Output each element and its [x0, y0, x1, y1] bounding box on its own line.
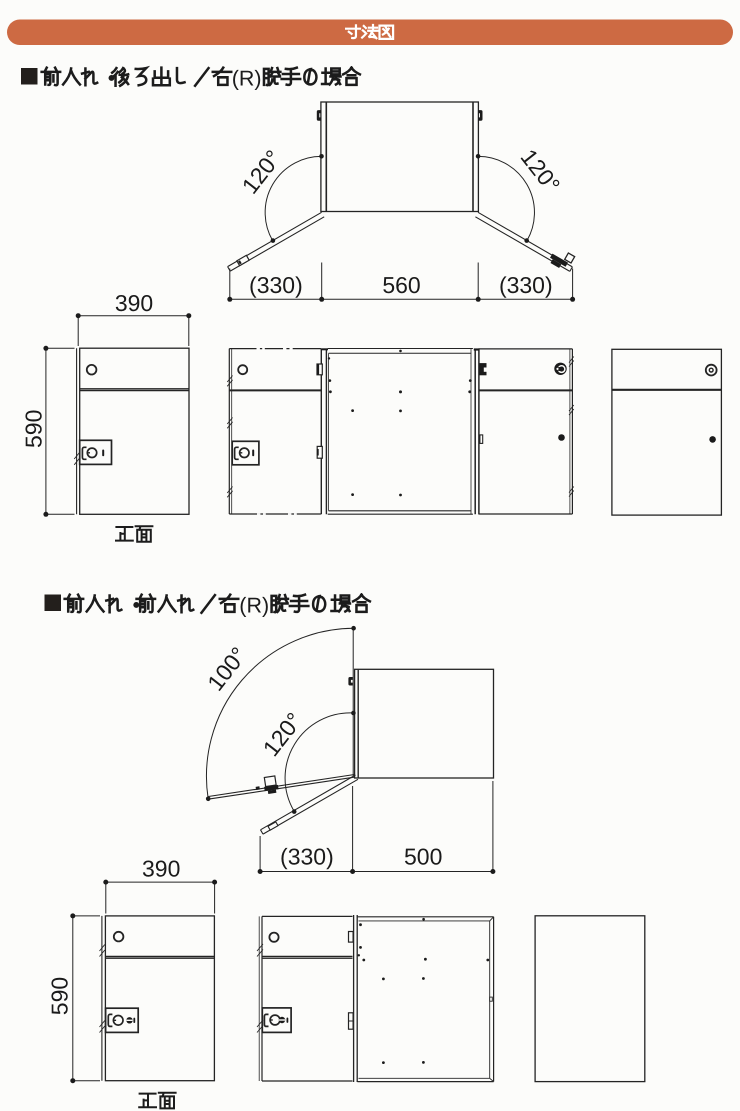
svg-text:500: 500 [404, 844, 442, 870]
svg-text:390: 390 [115, 290, 153, 316]
svg-text:590: 590 [47, 977, 73, 1015]
svg-text:390: 390 [142, 856, 180, 882]
svg-text:(330): (330) [249, 272, 303, 298]
svg-text:(R): (R) [232, 67, 262, 91]
svg-text:(R): (R) [239, 594, 269, 618]
svg-text:(330): (330) [280, 844, 334, 870]
svg-text:590: 590 [20, 410, 46, 448]
svg-text:560: 560 [382, 272, 420, 298]
svg-text:(330): (330) [499, 272, 553, 298]
